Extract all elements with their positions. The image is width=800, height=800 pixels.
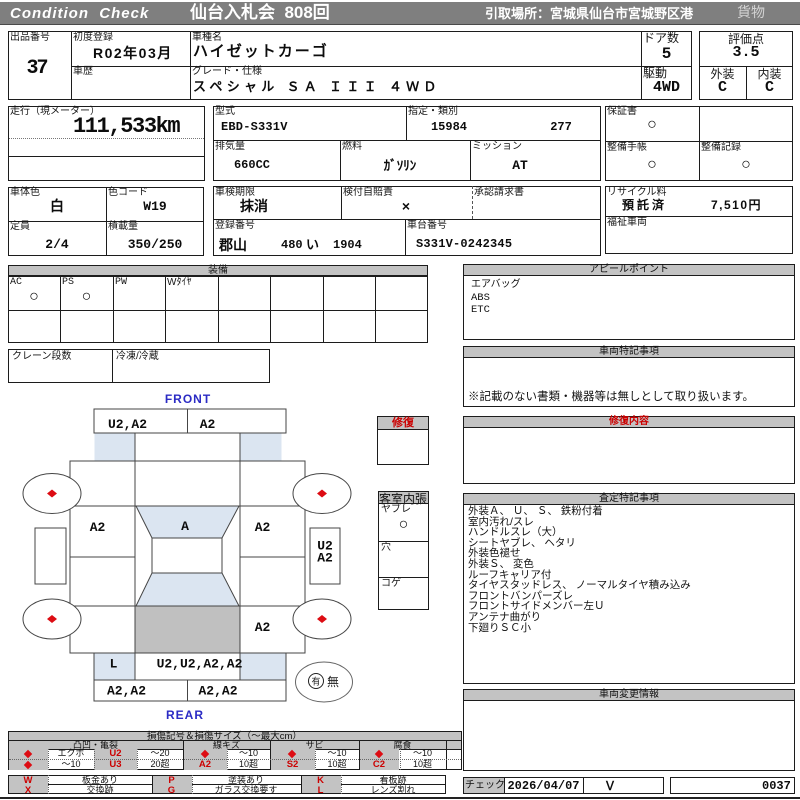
svg-text:U2,A2: U2,A2 (108, 417, 147, 432)
svg-text:A2: A2 (90, 520, 106, 535)
svg-text:A2,A2: A2,A2 (198, 684, 237, 699)
svg-text:A2: A2 (255, 620, 271, 635)
svg-text:A: A (181, 519, 189, 534)
svg-text:A2: A2 (255, 520, 271, 535)
svg-text:有: 有 (311, 676, 320, 687)
svg-text:A2: A2 (317, 551, 333, 566)
svg-text:A2,A2: A2,A2 (107, 684, 146, 699)
svg-text:無: 無 (327, 674, 339, 689)
svg-text:U2,U2,A2,A2: U2,U2,A2,A2 (157, 657, 243, 672)
svg-text:A2: A2 (200, 417, 216, 432)
svg-text:L: L (110, 657, 118, 672)
